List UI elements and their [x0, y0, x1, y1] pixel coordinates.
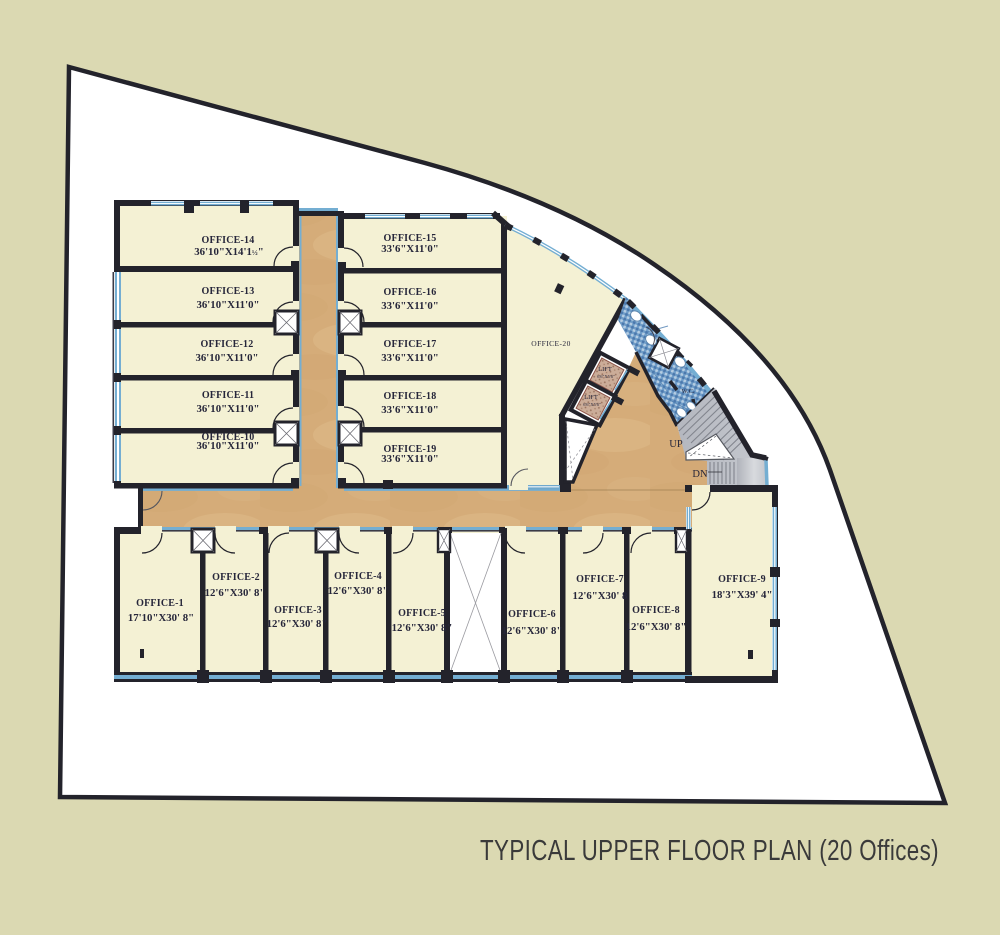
- svg-text:OFFICE-13: OFFICE-13: [202, 286, 255, 297]
- svg-text:33'6"X11'0": 33'6"X11'0": [381, 243, 439, 255]
- svg-text:18'3"X39' 4": 18'3"X39' 4": [712, 589, 773, 601]
- svg-text:33'6"X11'0": 33'6"X11'0": [381, 453, 439, 465]
- svg-text:33'6"X11'0": 33'6"X11'0": [381, 352, 439, 364]
- svg-text:OFFICE-20: OFFICE-20: [531, 339, 570, 348]
- svg-text:OFFICE-5: OFFICE-5: [398, 608, 446, 619]
- svg-text:OFFICE-7: OFFICE-7: [576, 574, 624, 585]
- svg-text:OFFICE-2: OFFICE-2: [212, 572, 260, 583]
- svg-text:12'6"X30' 8": 12'6"X30' 8": [502, 625, 563, 637]
- svg-text:OFFICE-18: OFFICE-18: [384, 391, 437, 402]
- svg-text:36'10"X11'0": 36'10"X11'0": [197, 299, 260, 311]
- svg-text:12'6"X30' 8: 12'6"X30' 8: [573, 590, 628, 602]
- svg-text:OFFICE-17: OFFICE-17: [384, 339, 437, 350]
- svg-text:OFFICE-11: OFFICE-11: [202, 390, 254, 401]
- svg-text:36'10"X11'0": 36'10"X11'0": [196, 352, 259, 364]
- svg-text:LIFT: LIFT: [584, 394, 598, 401]
- svg-text:36'10"X11'0": 36'10"X11'0": [197, 403, 260, 415]
- svg-text:UP: UP: [669, 439, 683, 450]
- svg-text:12'6"X30' 8": 12'6"X30' 8": [328, 585, 389, 597]
- svg-text:33'6"X11'0": 33'6"X11'0": [381, 300, 439, 312]
- svg-text:33'6"X11'0": 33'6"X11'0": [381, 404, 439, 416]
- svg-text:36'10"X11'0": 36'10"X11'0": [197, 440, 260, 452]
- svg-text:12'6"X30' 8": 12'6"X30' 8": [205, 587, 266, 599]
- svg-text:OFFICE-16: OFFICE-16: [384, 287, 437, 298]
- svg-text:6'6"X5'6": 6'6"X5'6": [583, 402, 601, 407]
- svg-text:12'6"X30' 8": 12'6"X30' 8": [626, 621, 687, 633]
- svg-text:OFFICE-4: OFFICE-4: [334, 571, 382, 582]
- svg-text:LIFT: LIFT: [598, 366, 612, 373]
- svg-text:DN: DN: [692, 469, 708, 480]
- svg-text:OFFICE-3: OFFICE-3: [274, 605, 322, 616]
- svg-text:12'6"X30' 8": 12'6"X30' 8": [392, 622, 453, 634]
- svg-text:17'10"X30' 8": 17'10"X30' 8": [128, 612, 194, 624]
- svg-text:OFFICE-14: OFFICE-14: [202, 235, 255, 246]
- svg-text:OFFICE-9: OFFICE-9: [718, 574, 766, 585]
- svg-text:TYPICAL UPPER FLOOR PLAN (20 O: TYPICAL UPPER FLOOR PLAN (20 Offices): [480, 835, 939, 867]
- svg-text:OFFICE-8: OFFICE-8: [632, 605, 680, 616]
- svg-text:OFFICE-6: OFFICE-6: [508, 609, 556, 620]
- svg-text:6'6"X5'6": 6'6"X5'6": [597, 374, 615, 379]
- svg-text:OFFICE-1: OFFICE-1: [136, 598, 184, 609]
- svg-text:12'6"X30' 8": 12'6"X30' 8": [267, 618, 328, 630]
- svg-text:OFFICE-12: OFFICE-12: [201, 339, 254, 350]
- svg-text:W.C.: W.C.: [681, 388, 694, 395]
- svg-text:36'10"X14'1½": 36'10"X14'1½": [194, 246, 263, 258]
